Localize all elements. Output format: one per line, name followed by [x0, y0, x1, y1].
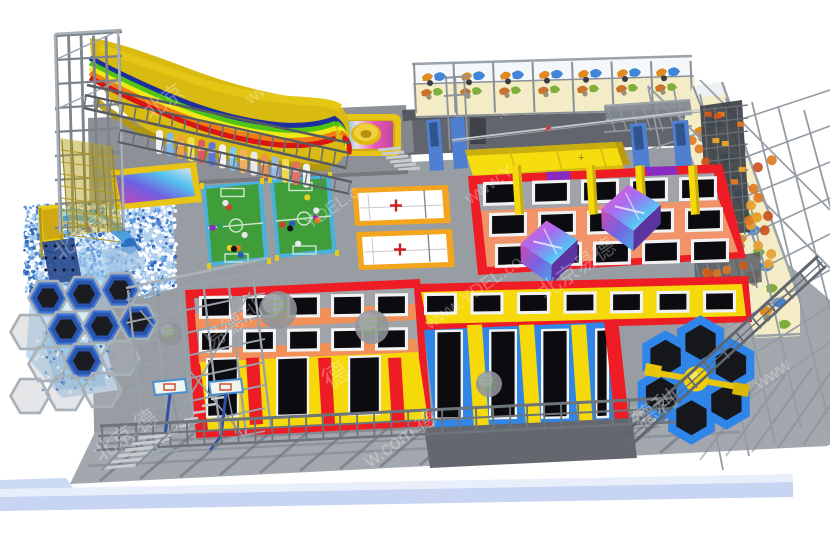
svg-text:+: +: [578, 152, 584, 164]
